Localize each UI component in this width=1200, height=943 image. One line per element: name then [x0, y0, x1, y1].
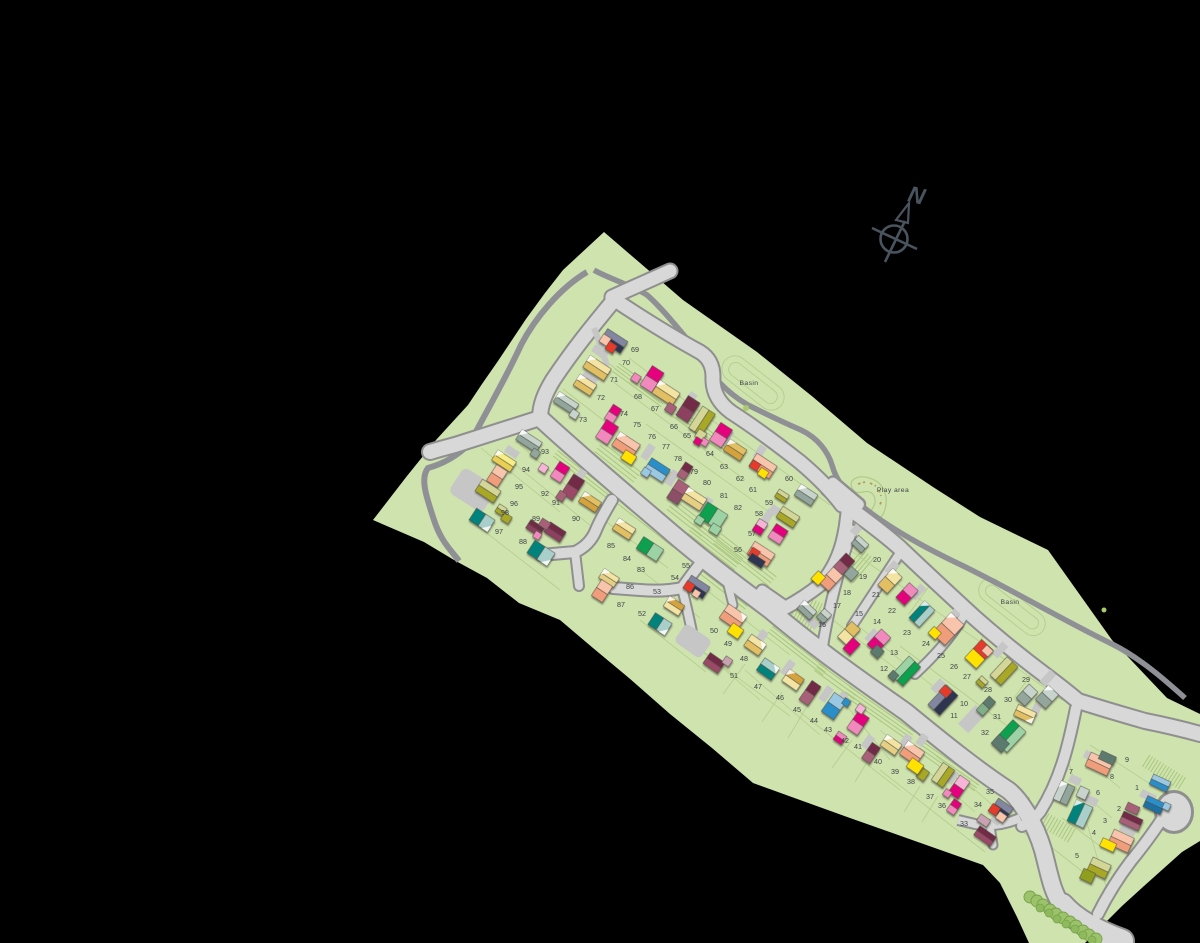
svg-text:23: 23 — [903, 628, 911, 637]
svg-text:82: 82 — [734, 503, 742, 512]
svg-text:67: 67 — [651, 404, 659, 413]
svg-text:61: 61 — [749, 485, 757, 494]
svg-text:45: 45 — [793, 705, 801, 714]
svg-text:78: 78 — [674, 454, 682, 463]
svg-text:54: 54 — [671, 573, 679, 582]
svg-text:75: 75 — [633, 420, 641, 429]
svg-text:24: 24 — [922, 639, 930, 648]
svg-text:64: 64 — [706, 449, 714, 458]
svg-text:43: 43 — [824, 725, 832, 734]
svg-text:6: 6 — [1096, 788, 1100, 797]
svg-text:28: 28 — [984, 685, 992, 694]
svg-text:94: 94 — [522, 465, 530, 474]
svg-text:71: 71 — [610, 375, 618, 384]
svg-text:Play area: Play area — [877, 487, 909, 494]
svg-text:32: 32 — [981, 728, 989, 737]
svg-text:14: 14 — [873, 617, 881, 626]
svg-text:13: 13 — [890, 648, 898, 657]
svg-text:59: 59 — [765, 498, 773, 507]
svg-text:91: 91 — [552, 498, 560, 507]
svg-text:2: 2 — [1117, 804, 1121, 813]
svg-text:17: 17 — [833, 601, 841, 610]
svg-text:22: 22 — [888, 606, 896, 615]
svg-text:41: 41 — [854, 742, 862, 751]
svg-text:93: 93 — [541, 447, 549, 456]
svg-text:63: 63 — [720, 462, 728, 471]
svg-text:21: 21 — [872, 590, 880, 599]
svg-text:7: 7 — [1069, 767, 1073, 776]
svg-text:30: 30 — [1004, 695, 1012, 704]
svg-text:44: 44 — [810, 716, 818, 725]
svg-text:37: 37 — [926, 792, 934, 801]
svg-text:88: 88 — [519, 537, 527, 546]
svg-text:96: 96 — [510, 499, 518, 508]
svg-text:42: 42 — [841, 736, 849, 745]
svg-text:48: 48 — [740, 654, 748, 663]
svg-text:4: 4 — [1092, 828, 1096, 837]
svg-text:49: 49 — [724, 639, 732, 648]
svg-text:31: 31 — [993, 712, 1001, 721]
svg-text:77: 77 — [662, 442, 670, 451]
svg-text:12: 12 — [880, 664, 888, 673]
svg-text:90: 90 — [572, 514, 580, 523]
svg-text:95: 95 — [515, 482, 523, 491]
svg-text:11: 11 — [950, 711, 957, 720]
svg-text:69: 69 — [631, 345, 639, 354]
svg-text:40: 40 — [874, 757, 882, 766]
svg-text:16: 16 — [818, 620, 826, 629]
svg-text:57: 57 — [748, 529, 756, 538]
svg-text:35: 35 — [986, 787, 994, 796]
svg-text:81: 81 — [720, 491, 728, 500]
svg-text:89: 89 — [532, 514, 540, 523]
svg-text:79: 79 — [690, 467, 698, 476]
svg-text:18: 18 — [843, 588, 851, 597]
svg-text:38: 38 — [907, 777, 915, 786]
svg-text:56: 56 — [734, 545, 742, 554]
svg-text:39: 39 — [891, 767, 899, 776]
svg-text:50: 50 — [710, 626, 718, 635]
svg-text:Basin: Basin — [739, 380, 758, 387]
svg-text:5: 5 — [1075, 851, 1079, 860]
svg-text:1: 1 — [1135, 783, 1139, 792]
svg-text:66: 66 — [670, 422, 678, 431]
svg-text:58: 58 — [755, 509, 763, 518]
svg-text:51: 51 — [730, 671, 738, 680]
svg-text:36: 36 — [938, 801, 946, 810]
svg-text:25: 25 — [937, 651, 945, 660]
svg-text:62: 62 — [736, 474, 744, 483]
svg-text:83: 83 — [637, 565, 645, 574]
svg-text:29: 29 — [1022, 675, 1030, 684]
svg-text:73: 73 — [579, 415, 587, 424]
svg-text:87: 87 — [617, 600, 625, 609]
svg-text:92: 92 — [541, 489, 549, 498]
svg-text:68: 68 — [634, 392, 642, 401]
svg-text:20: 20 — [873, 555, 881, 564]
svg-text:86: 86 — [626, 582, 634, 591]
svg-text:34: 34 — [974, 800, 982, 809]
svg-text:97: 97 — [495, 527, 503, 536]
svg-text:9: 9 — [1125, 755, 1129, 764]
svg-text:33: 33 — [960, 819, 968, 828]
svg-text:70: 70 — [622, 358, 630, 367]
svg-text:76: 76 — [648, 432, 656, 441]
svg-text:3: 3 — [1103, 816, 1107, 825]
svg-text:8: 8 — [1110, 772, 1114, 781]
svg-text:46: 46 — [776, 693, 784, 702]
svg-text:55: 55 — [682, 561, 690, 570]
svg-text:52: 52 — [638, 609, 646, 618]
svg-text:26: 26 — [950, 662, 958, 671]
svg-text:19: 19 — [859, 572, 867, 581]
svg-text:65: 65 — [683, 431, 691, 440]
svg-text:80: 80 — [703, 478, 711, 487]
svg-text:15: 15 — [855, 609, 863, 618]
svg-text:53: 53 — [653, 587, 661, 596]
svg-text:74: 74 — [620, 409, 628, 418]
svg-text:47: 47 — [754, 682, 762, 691]
svg-text:72: 72 — [597, 393, 605, 402]
svg-text:85: 85 — [607, 541, 615, 550]
svg-text:Basin: Basin — [1000, 599, 1019, 606]
svg-text:10: 10 — [960, 699, 968, 708]
svg-text:27: 27 — [963, 672, 971, 681]
svg-text:84: 84 — [623, 554, 631, 563]
svg-text:60: 60 — [785, 474, 793, 483]
svg-text:98: 98 — [501, 508, 509, 517]
